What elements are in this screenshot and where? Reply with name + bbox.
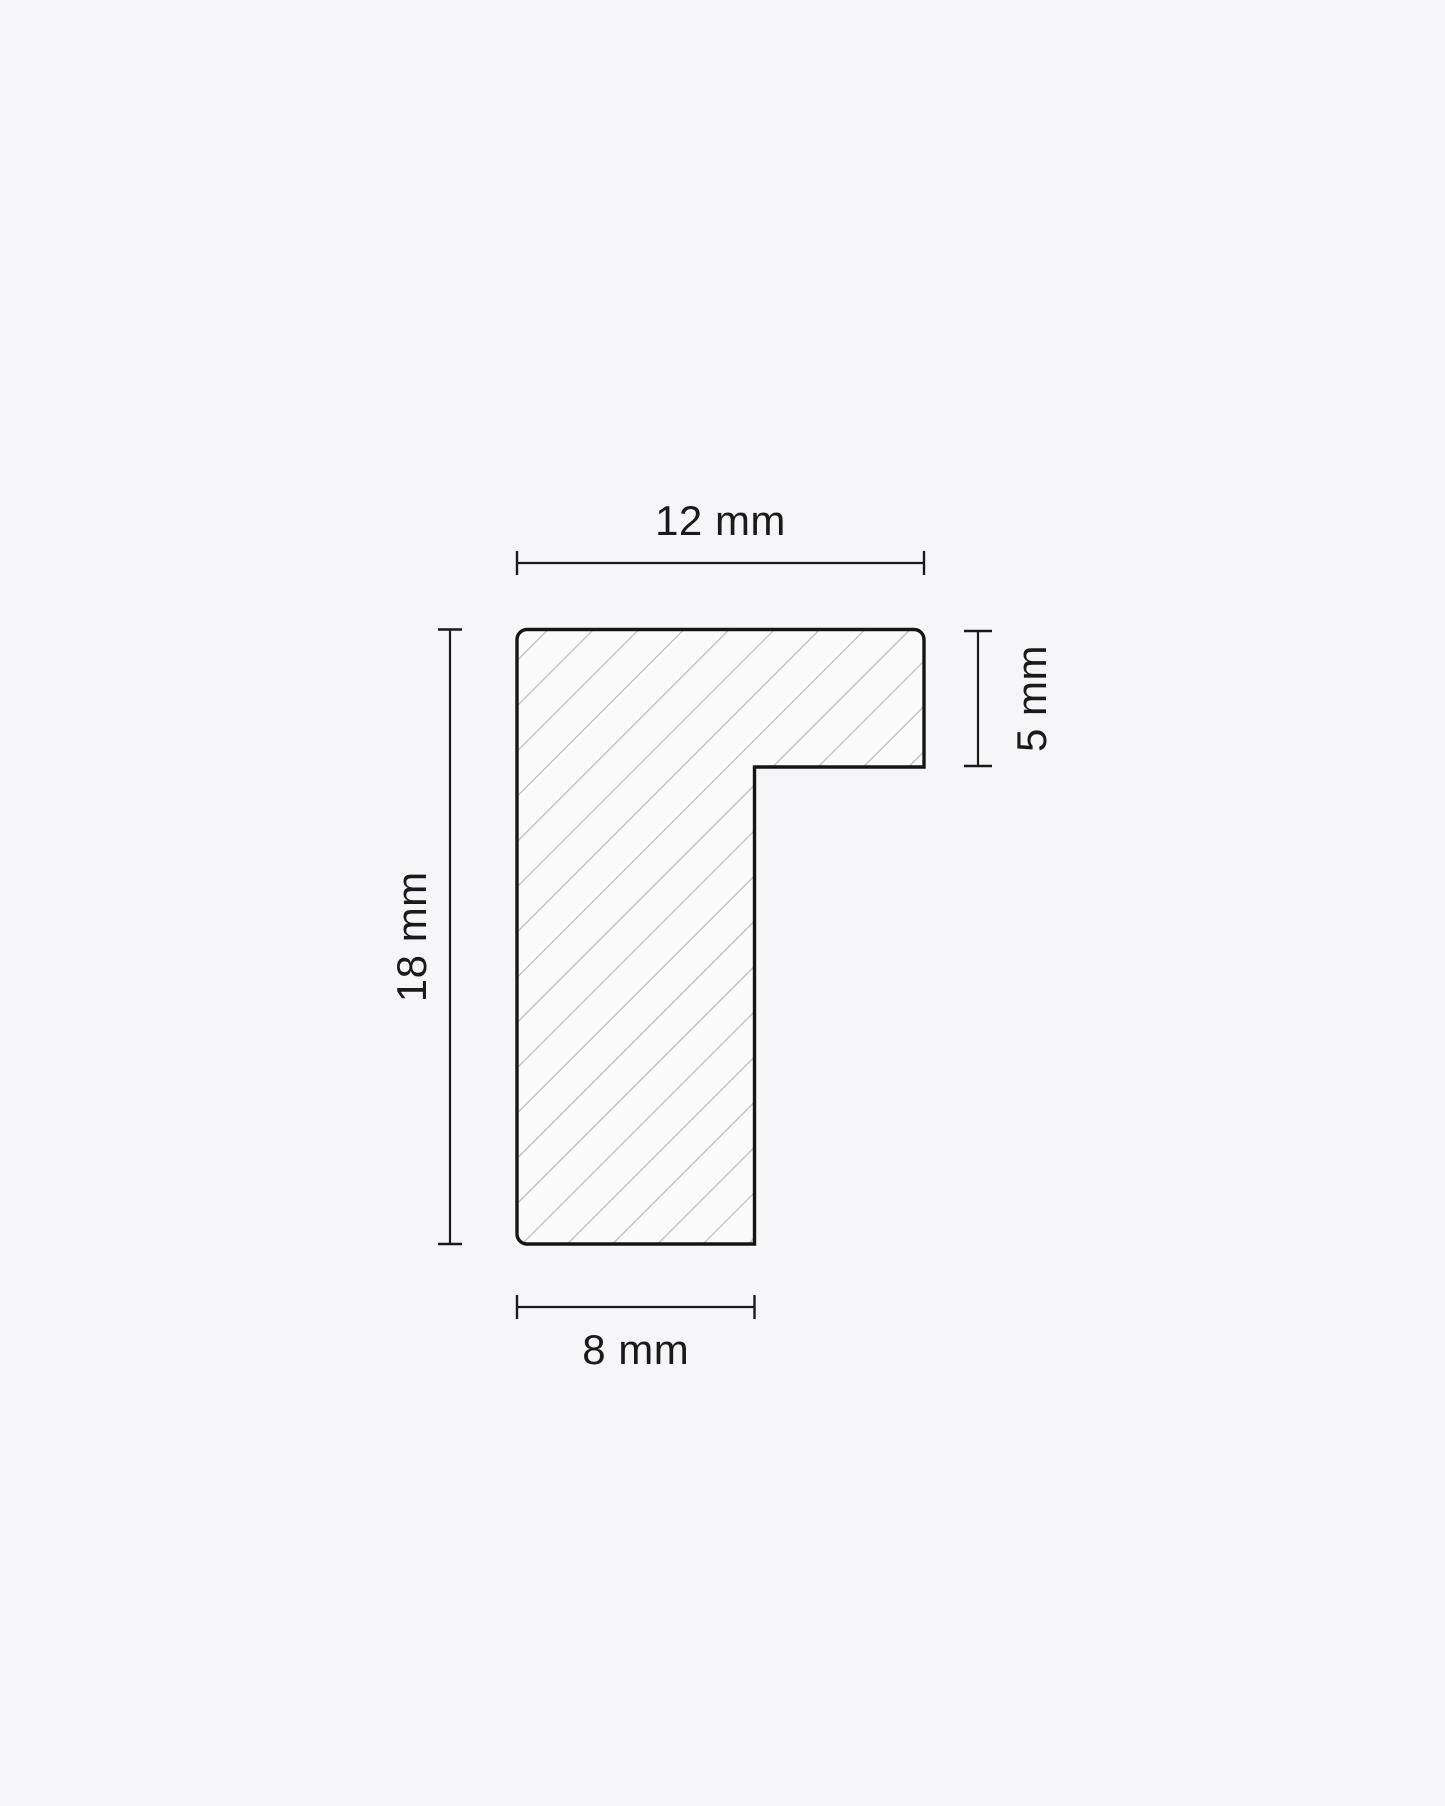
dimension-bottom: 8 mm — [517, 1295, 755, 1373]
dimension-bottom-label: 8 mm — [582, 1326, 689, 1373]
profile-shape — [517, 630, 924, 1245]
dimension-left-label: 18 mm — [388, 871, 435, 1002]
dimension-right-label: 5 mm — [1008, 645, 1055, 752]
diagram-canvas: 12 mm 5 mm 18 mm 8 mm — [0, 0, 1445, 1806]
dimension-top-label: 12 mm — [655, 497, 786, 544]
profile-cross-section-diagram: 12 mm 5 mm 18 mm 8 mm — [0, 0, 1445, 1806]
dimension-left: 18 mm — [388, 630, 462, 1245]
dimension-top: 12 mm — [517, 497, 924, 575]
dimension-right: 5 mm — [964, 631, 1055, 766]
